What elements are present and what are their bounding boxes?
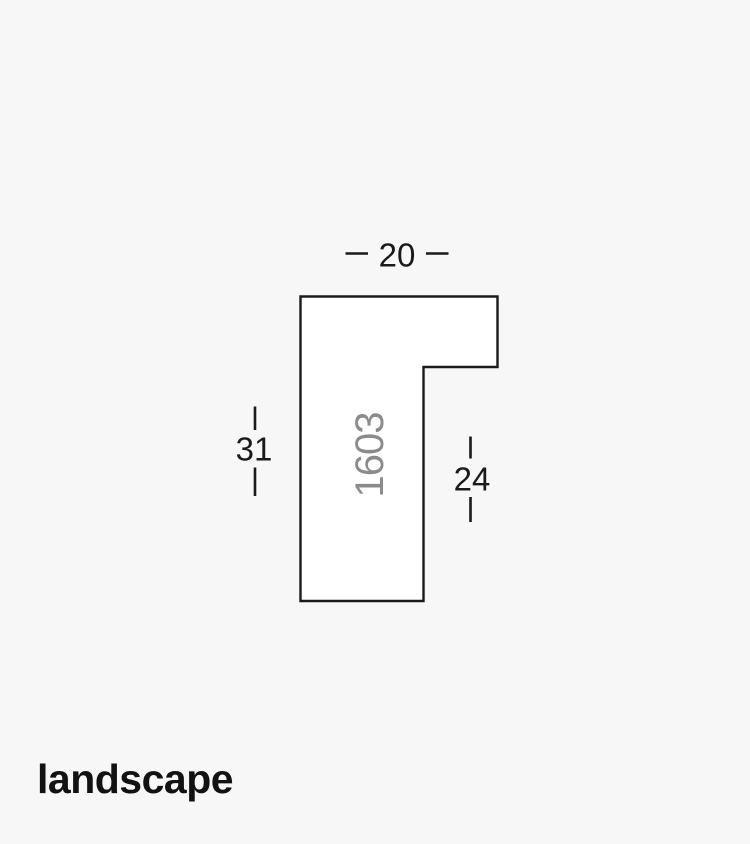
- orientation-caption: landscape: [37, 757, 233, 802]
- height-dimension-value: 31: [236, 433, 273, 466]
- moulding-profile-diagram: 20 31 24 1603 landscape: [0, 0, 750, 844]
- width-dimension-value: 20: [379, 239, 416, 272]
- moulding-profile-outline: [301, 297, 498, 602]
- profile-code-label: 1603: [350, 413, 390, 498]
- rebate-dimension-value: 24: [454, 463, 491, 496]
